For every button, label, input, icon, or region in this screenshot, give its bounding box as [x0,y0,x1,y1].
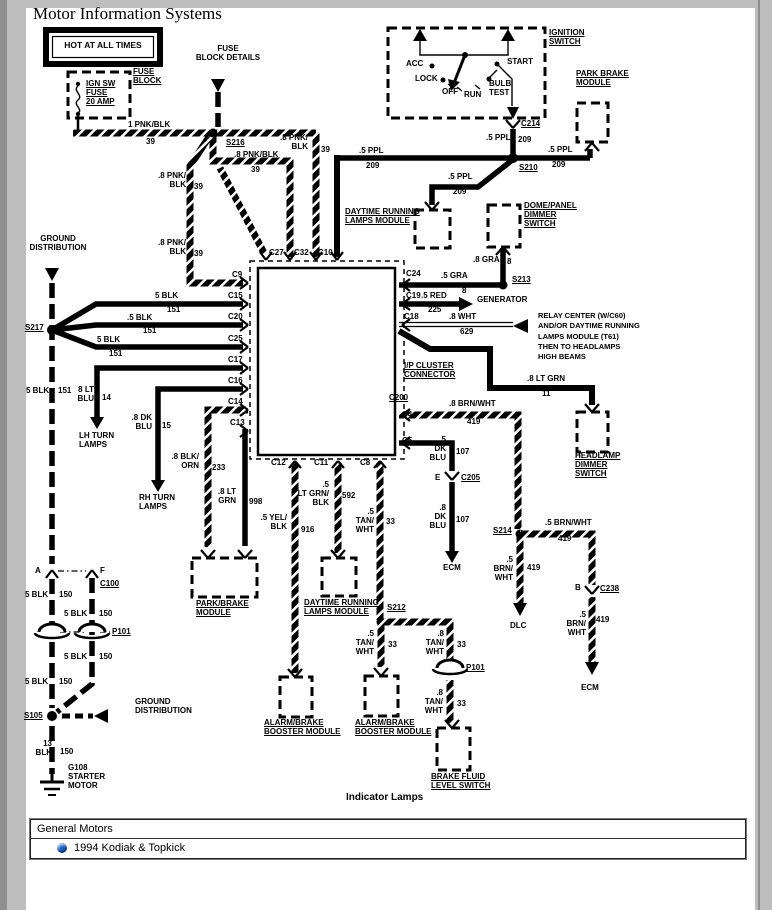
wire-label: .5 BRN/ WHT [561,610,586,638]
conn-c214: C214 [521,119,540,128]
ecm-mid-label: ECM [443,563,461,572]
alarm-brake-center-label: ALARM/BRAKE BOOSTER MODULE [355,718,431,736]
wire-label: 5 BLK [97,335,120,344]
conn-c4: C4 [402,410,412,419]
wire-label: F [100,566,105,575]
conn-c27: C27 [269,248,284,257]
wire-label: 233 [212,463,225,472]
rh-turn-lamps-label: RH TURN LAMPS [139,493,175,511]
wire-label: 33 [457,699,466,708]
wire-label: .5 PPL [359,146,383,155]
fuse-block: FUSE BLOCK [133,67,161,85]
conn-c18: C18 [404,312,419,321]
wire-label: 39 [251,165,260,174]
headlamp-dimmer-box [577,412,608,452]
wire-label: 151 [167,305,180,314]
wire-label: .8 BLK/ ORN [170,452,199,470]
wire-label: 150 [59,590,72,599]
wiring-diagram-svg [0,0,772,910]
wire-label: 419 [467,417,480,426]
conn-c19: C19 [406,291,421,300]
dome-panel-dimmer-box [488,205,520,247]
wire-label: 209 [518,135,531,144]
wire-label: 150 [99,652,112,661]
conn-c205: C205 [461,473,480,482]
turn-lamp-wires [90,368,248,547]
wire-label: BULB TEST [489,79,511,97]
wire-label: 150 [59,677,72,686]
conn-c32: C32 [294,248,309,257]
conn-c15: C15 [228,291,243,300]
wire-label: .5 DK BLU [426,435,446,463]
wire-label: LOCK [415,74,438,83]
wire-label: 33 [457,640,466,649]
wire-label: 419 [527,563,540,572]
vehicle-bullet-icon [57,843,67,853]
wire-label: 209 [366,161,379,170]
conn-c20: C20 [228,312,243,321]
conn-c24: C24 [406,269,421,278]
park-brake-module2-box [192,558,257,597]
park-brake-module2-label: PARK/BRAKE MODULE [196,599,249,617]
wire-label: .8 DK BLU [426,503,446,531]
ignition-switch-symbol [388,28,545,119]
wire-label: 209 [552,160,565,169]
splice-s217: S217 [25,323,44,332]
wire-label: .8 LT GRN [212,487,236,505]
conn-c11: C11 [314,458,328,467]
wire-label: .8 TAN/ WHT [419,688,443,716]
conn-c14: C14 [228,397,243,406]
wire-label: A [35,566,41,575]
drl-module-bottom-box [322,558,356,596]
splice-nodes [209,129,218,138]
ip-cluster-connector-label: I/P CLUSTER CONNECTOR [404,361,455,379]
conn-c25: C25 [228,334,243,343]
wire-label: 8 LT BLU [72,385,94,403]
splice-s212: S212 [387,603,406,612]
conn-c16: C16 [228,376,243,385]
wire-label: 592 [342,491,355,500]
conn-c100: C100 [100,579,119,588]
wire-label: 151 [143,326,156,335]
wire-label: 225 [428,305,441,314]
wire-label: .5 BRN/ WHT [488,555,513,583]
conn-c238: C238 [600,584,619,593]
wire-label: 5 BLK [25,590,48,599]
wire-label: 5 BLK [64,609,87,618]
wire-label: 150 [99,609,112,618]
ground-distribution-bottom: GROUND DISTRIBUTION [135,697,192,715]
conn-c9: C9 [232,270,242,279]
wire-label: .5 BLK [127,313,152,322]
wire-label: 5 BLK [26,386,49,395]
ground-distribution-top: GROUND DISTRIBUTION [26,234,90,252]
brake-fluid-label: BRAKE FLUID LEVEL SWITCH [431,772,490,790]
wiring-diagram: Motor Information Systems [0,0,772,910]
wire-label: 33 [388,640,397,649]
splice-s216: S216 [226,138,245,147]
wire-label: 15 [162,421,171,430]
grommet-p101b-label: P101 [466,663,485,672]
wire-label: .8 DK BLU [128,413,152,431]
drl-module-top-label: DAYTIME RUNNING LAMPS MODULE [345,207,420,225]
dlc-label: DLC [510,621,526,630]
wire-label: 209 [453,187,466,196]
ecm-right-label: ECM [581,683,599,692]
conn-c8: C8 [360,458,370,467]
alarm-brake-left-box [280,677,312,717]
splice-s214: S214 [493,526,512,535]
conn-c13: C13 [230,418,245,427]
wire-label: .8 LT GRN [527,374,565,383]
wire-label: .8 PNK/ BLK [155,238,186,256]
wire-label: 14 [102,393,111,402]
wire-label: .5 GRA [441,271,468,280]
conn-c5: C5 [402,436,412,445]
wire-label: 5 BLK [64,652,87,661]
wire-label: 150 [60,747,73,756]
wire-label: 39 [321,145,330,154]
park-brake-module-label: PARK BRAKE MODULE [576,69,629,87]
wire-label: ACC [406,59,423,68]
vehicle-group-header: General Motors [31,820,745,839]
wire-label: RUN [464,90,481,99]
hot-at-all-times: HOT AT ALL TIMES [53,41,153,51]
conn-c12: C12 [271,458,286,467]
dome-panel-dimmer-label: DOME/PANEL DIMMER SWITCH [524,201,577,229]
g108-starter-motor: G108 STARTER MOTOR [68,763,105,791]
ign-sw-fuse: IGN SW FUSE 20 AMP [86,79,115,107]
wire-label: 419 [558,534,571,543]
wire-label: 1 PNK/BLK [128,120,170,129]
wire-label: 151 [109,349,122,358]
alarm-brake-left-label: ALARM/BRAKE BOOSTER MODULE [264,718,340,736]
splice-s213: S213 [512,275,531,284]
wire-label: .8 PNK/ BLK [278,133,308,151]
wire-label: .5 RED [421,291,447,300]
wire-label: 39 [194,182,203,191]
ip-cluster-connector-box [250,261,404,459]
wire-label: 998 [249,497,262,506]
wire-label: 8 [462,286,466,295]
wire-label: 916 [301,525,314,534]
wire-label: .5 TAN/ WHT [350,629,374,657]
wire-label: .5 TAN/ WHT [350,507,374,535]
fuse-block-details: FUSE BLOCK DETAILS [192,44,264,62]
alarm-brake-center-box [365,676,398,716]
wire-label: E [435,473,440,482]
headlamp-dimmer-label: HEADLAMP DIMMER SWITCH [575,451,620,479]
wire-label: .8 PNK/ BLK [155,171,186,189]
ground-distribution-left [40,268,243,795]
splice-s210: S210 [519,163,538,172]
wire-label: B [575,583,581,592]
wire-label: .8 TAN/ WHT [420,629,444,657]
wire-label: 8 [507,257,511,266]
vehicle-item-label: 1994 Kodiak & Topkick [74,842,185,854]
drl-module-top-box [415,210,450,248]
wire-label: 33 [386,517,395,526]
conn-c10: C10 [318,248,333,257]
wire-label: .5 LT GRN/ BLK [295,480,329,508]
drl-module-bottom-label: DAYTIME RUNNING LAMPS MODULE [304,598,379,616]
grommet-p101a-label: P101 [112,627,131,636]
wire-label: .5 YEL/ BLK [258,513,287,531]
vehicle-panel: General Motors 1994 Kodiak & Topkick [30,819,746,859]
brake-fluid-box [437,728,470,770]
lh-turn-lamps-label: LH TURN LAMPS [79,431,114,449]
wire-label: 629 [460,327,473,336]
grommet-p101a [35,624,109,638]
ignition-switch-label: IGNITION SWITCH [549,28,585,46]
wire-label: .5 PPL [486,133,510,142]
wire-label: .8 BRN/WHT [449,399,496,408]
wire-label: 107 [456,515,469,524]
fuse-block-details-pointer [211,79,225,127]
wire-label: 11 [542,389,550,398]
vehicle-item[interactable]: 1994 Kodiak & Topkick [31,839,745,857]
wire-label: .8 PNK/BLK [234,150,278,159]
wire-label: .5 PPL [448,172,472,181]
grommet-p101b [433,660,467,674]
wire-label: 39 [194,249,203,258]
wire-label: .5 PPL [548,145,572,154]
wire-label: 5 BLK [155,291,178,300]
relay-note: RELAY CENTER (W/C60) AND/OR DAYTIME RUNN… [538,311,640,363]
wire-label: START [507,57,533,66]
wire-label: 107 [456,447,469,456]
wire-label: 5 BLK [25,677,48,686]
wire-label: 419 [596,615,609,624]
conn-c17: C17 [228,355,243,364]
wire-label: OFF [442,87,458,96]
wire-label: .8 WHT [449,312,476,321]
wire-label: .8 GRA [473,255,500,264]
conn-c200: C200 [389,393,408,402]
wire-label: 151 [58,386,71,395]
wire-label: 39 [146,137,155,146]
splice-s105: S105 [24,711,43,720]
wire-label: 13 BLK [32,739,52,757]
generator-label: GENERATOR [477,295,527,304]
park-brake-module-box [577,103,608,142]
diagram-caption: Indicator Lamps [346,792,423,804]
wire-label: .5 BRN/WHT [545,518,592,527]
